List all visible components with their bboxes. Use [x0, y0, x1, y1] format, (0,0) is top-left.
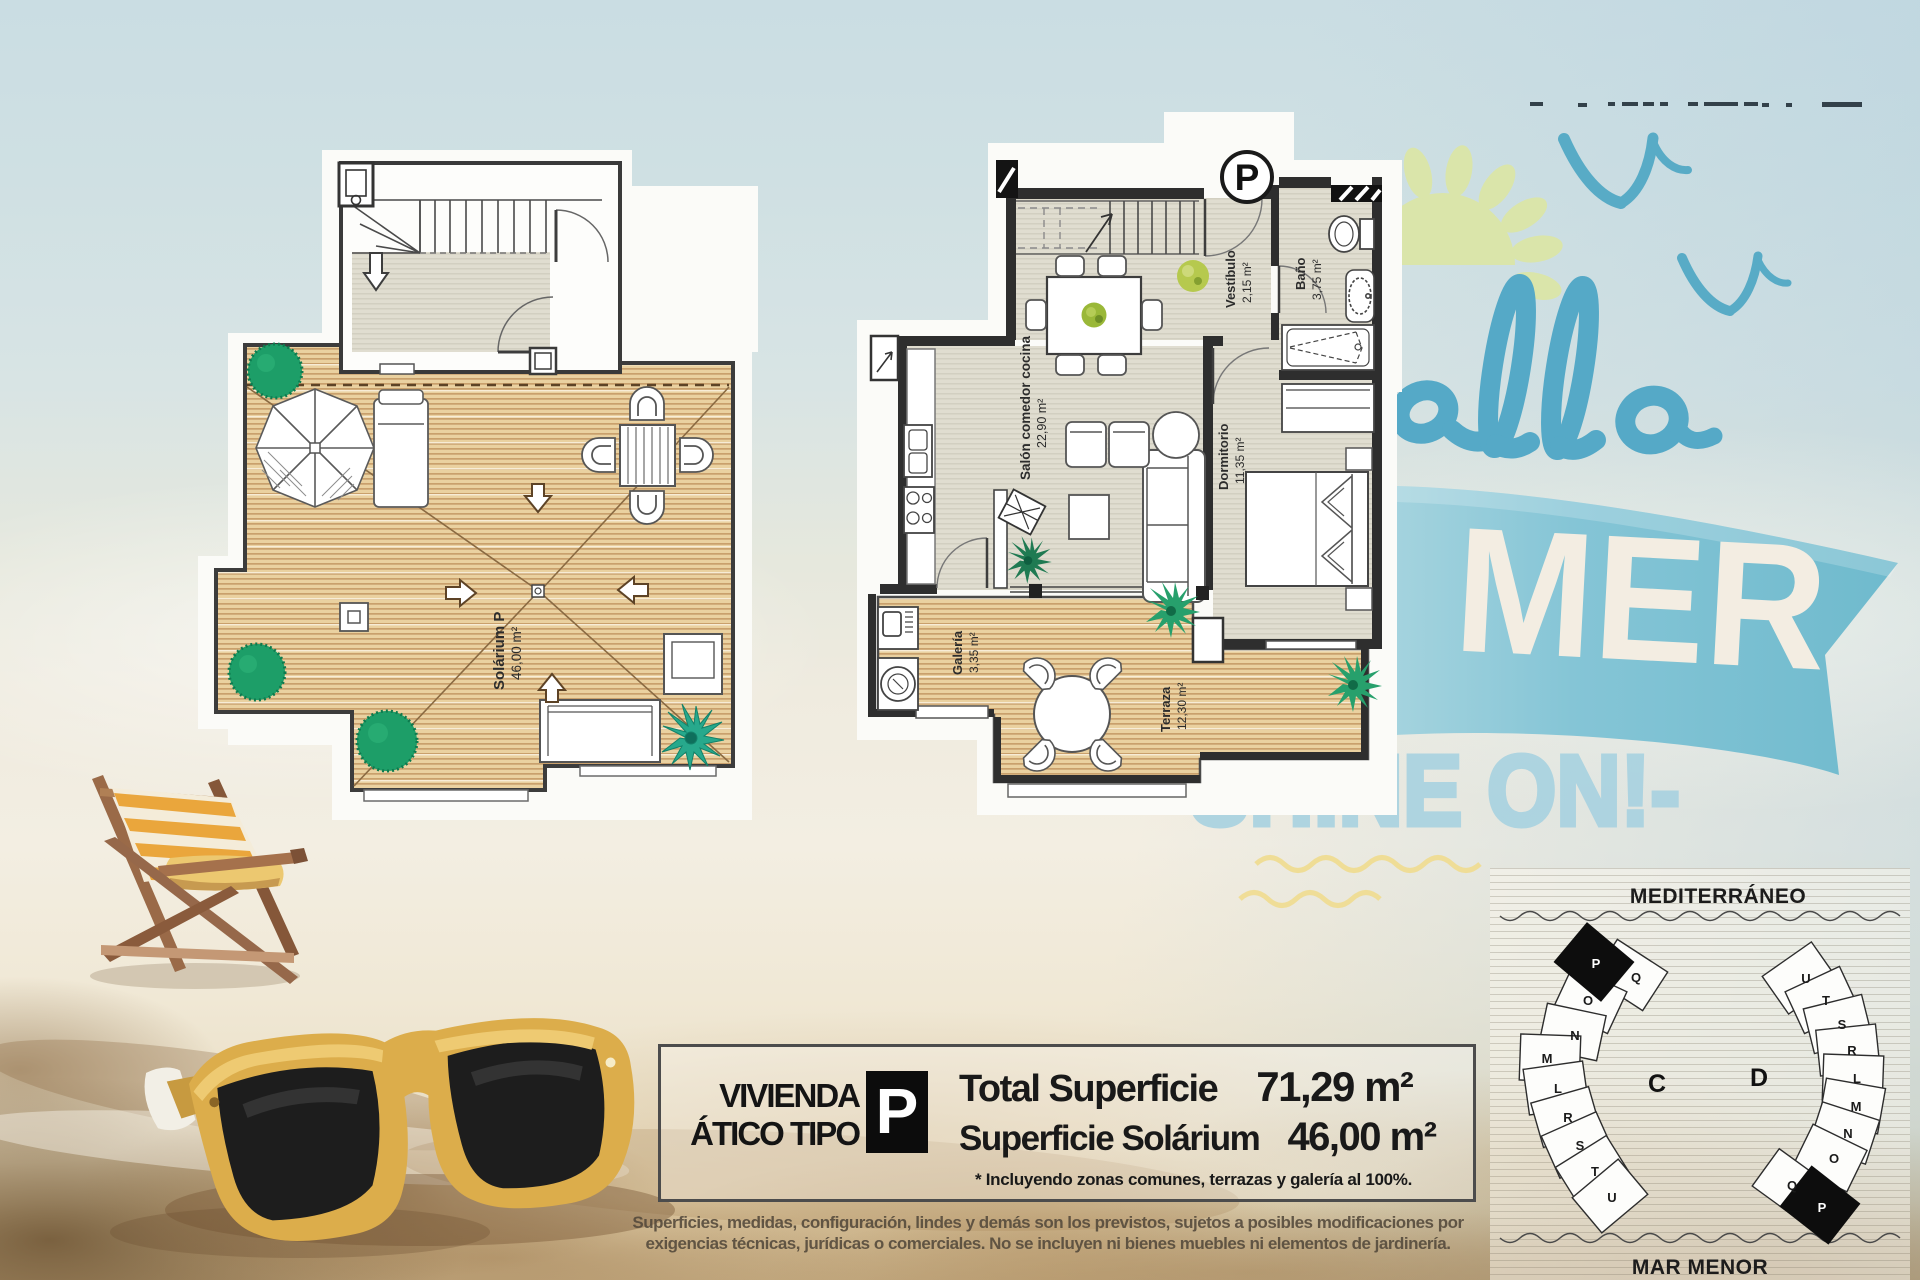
svg-text:D: D [1750, 1064, 1768, 1092]
svg-text:Baño: Baño [1293, 257, 1308, 290]
svg-text:S: S [1838, 1017, 1847, 1032]
svg-text:L: L [1554, 1081, 1562, 1096]
svg-text:T: T [1591, 1164, 1599, 1179]
svg-text:Dormitorio: Dormitorio [1216, 424, 1231, 491]
svg-text:3,75 m²: 3,75 m² [1310, 259, 1324, 300]
svg-text:R: R [1563, 1110, 1573, 1125]
svg-text:MAR MENOR: MAR MENOR [1632, 1256, 1768, 1279]
svg-text:N: N [1570, 1028, 1579, 1043]
svg-text:N: N [1843, 1126, 1852, 1141]
svg-text:Salón comedor cocina: Salón comedor cocina [1018, 335, 1033, 480]
svg-text:U: U [1801, 971, 1810, 986]
svg-text:Vestíbulo: Vestíbulo [1223, 250, 1238, 308]
svg-text:L: L [1853, 1071, 1861, 1086]
svg-text:MEDITERRÁNEO: MEDITERRÁNEO [1630, 885, 1806, 908]
svg-text:P: P [1592, 956, 1601, 971]
svg-text:S: S [1576, 1138, 1585, 1153]
svg-text:3,35 m²: 3,35 m² [967, 632, 981, 673]
svg-text:C: C [1648, 1070, 1666, 1098]
svg-text:Terraza: Terraza [1158, 686, 1173, 732]
svg-text:U: U [1607, 1190, 1616, 1205]
svg-text:O: O [1583, 993, 1593, 1008]
svg-text:O: O [1829, 1151, 1839, 1166]
svg-text:Q: Q [1631, 970, 1641, 985]
svg-text:Solárium P: Solárium P [491, 612, 508, 690]
svg-text:M: M [1851, 1099, 1862, 1114]
svg-text:12,30 m²: 12,30 m² [1175, 683, 1189, 730]
svg-text:22,90 m²: 22,90 m² [1035, 399, 1049, 448]
svg-text:46,00 m²: 46,00 m² [509, 626, 524, 680]
svg-text:P: P [1235, 157, 1260, 198]
svg-text:11,35 m²: 11,35 m² [1233, 438, 1247, 484]
svg-text:P: P [1818, 1200, 1827, 1215]
svg-text:M: M [1542, 1051, 1553, 1066]
svg-text:T: T [1822, 993, 1830, 1008]
svg-text:MER: MER [1450, 489, 1832, 707]
svg-text:Galería: Galería [950, 630, 965, 675]
svg-text:R: R [1847, 1043, 1857, 1058]
svg-text:Q: Q [1787, 1178, 1797, 1193]
svg-text:2,15 m²: 2,15 m² [1240, 262, 1254, 303]
